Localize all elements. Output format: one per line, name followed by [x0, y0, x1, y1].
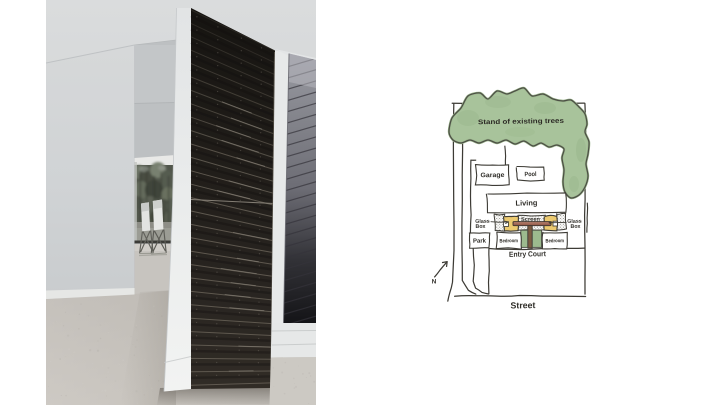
svg-text:Pool: Pool [524, 171, 536, 178]
svg-text:Street: Street [510, 300, 535, 310]
svg-text:N: N [432, 278, 437, 285]
svg-text:Park: Park [473, 238, 487, 245]
svg-text:Living: Living [515, 198, 538, 207]
svg-text:Box: Box [570, 224, 580, 230]
svg-text:Bedroom: Bedroom [499, 238, 518, 244]
svg-text:Entry Court: Entry Court [509, 249, 547, 259]
svg-text:Bedroom: Bedroom [545, 238, 564, 244]
svg-text:Garage: Garage [480, 172, 504, 179]
svg-text:Screen: Screen [521, 217, 540, 223]
svg-text:Box: Box [475, 224, 485, 230]
